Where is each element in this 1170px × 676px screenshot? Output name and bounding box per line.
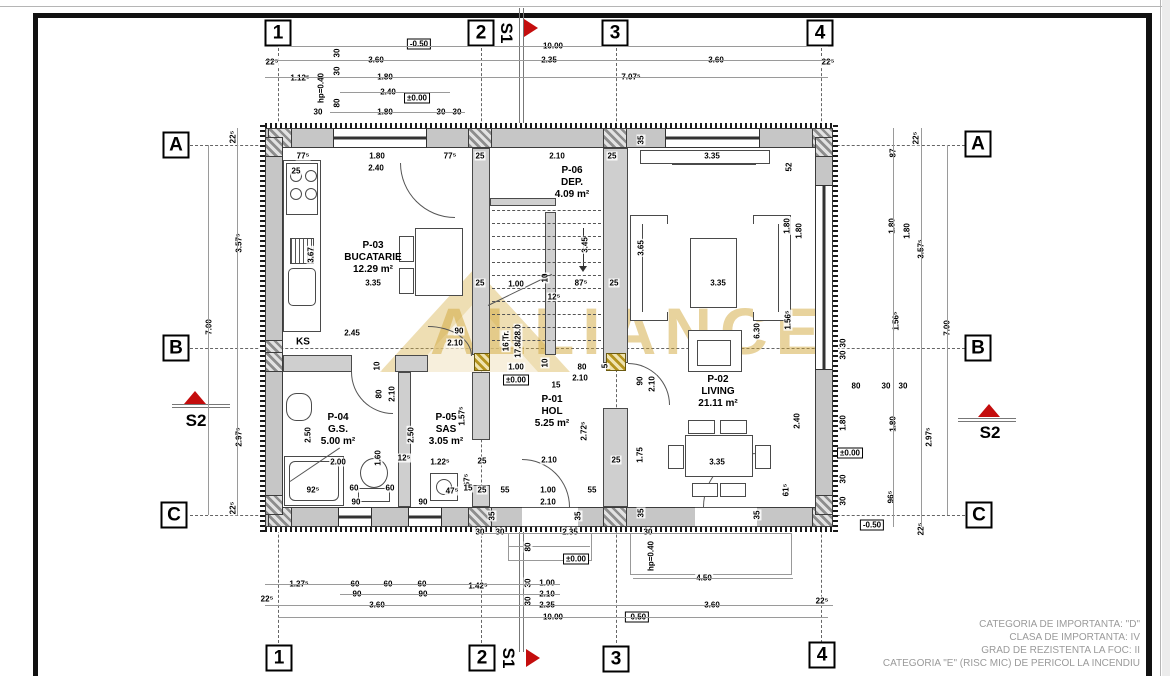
dimension-label: 25 bbox=[291, 167, 302, 176]
sofa-left-seat bbox=[642, 224, 668, 312]
room-area: 4.09 m² bbox=[555, 189, 589, 201]
stair-spine-wall bbox=[545, 212, 556, 355]
dimension-label: 6.30 bbox=[753, 322, 762, 340]
dimension-label: 80 bbox=[333, 98, 342, 109]
dimension-line bbox=[265, 584, 560, 585]
stair-tread bbox=[492, 262, 601, 263]
dimension-label: 7.00 bbox=[205, 318, 214, 336]
dimension-label: 2.40 bbox=[367, 164, 385, 173]
room-id: P-03 bbox=[344, 240, 401, 252]
fire-safety-notes: CATEGORIA DE IMPORTANTA: "D" CLASA DE IM… bbox=[883, 618, 1140, 670]
section-line-s1 bbox=[519, 8, 520, 128]
dimension-label: 30 bbox=[839, 496, 848, 507]
dimension-label: 1.57⁵ bbox=[458, 405, 467, 426]
room-area: 3.05 m² bbox=[429, 436, 463, 448]
dimension-label: -0.50 bbox=[407, 39, 431, 50]
tv-unit-inner bbox=[697, 340, 731, 366]
dimension-label: 2.10 bbox=[446, 339, 464, 348]
dimension-label: -0.50 bbox=[860, 520, 884, 531]
dimension-label: 3.57⁵ bbox=[235, 232, 244, 253]
dimension-label: 35 bbox=[637, 508, 646, 519]
dimension-line bbox=[340, 594, 560, 595]
dimension-line bbox=[921, 128, 922, 527]
section-line-s2 bbox=[958, 421, 1016, 422]
dimension-label: 2.97⁵ bbox=[925, 426, 934, 447]
dimension-label: 60 bbox=[385, 484, 396, 493]
wall-hatch bbox=[265, 352, 283, 372]
sheet-top-thin-line bbox=[0, 6, 1170, 7]
window-kitchen-top bbox=[333, 128, 427, 148]
dimension-label: 30 bbox=[643, 528, 654, 537]
grid-marker-A: A bbox=[163, 132, 190, 159]
section-label-s2-left: S2 bbox=[186, 411, 207, 431]
dimension-label: 90 bbox=[636, 376, 645, 387]
dimension-label: 12⁵ bbox=[397, 454, 412, 463]
dimension-label: 1.80 bbox=[888, 217, 897, 235]
dimension-label: 2.00 bbox=[329, 458, 347, 467]
dimension-line bbox=[278, 617, 828, 618]
kitchen-table bbox=[415, 228, 463, 296]
dimension-label: 1.22⁵ bbox=[429, 458, 450, 467]
section-label-s1-bottom: S1 bbox=[498, 648, 518, 669]
dimension-label: 3.35 bbox=[364, 279, 382, 288]
dimension-label: 2.35 bbox=[561, 528, 579, 537]
dimension-label: 92⁵ bbox=[306, 486, 321, 495]
dining-table bbox=[685, 435, 753, 477]
note-line: CLASA DE IMPORTANTA: IV bbox=[883, 631, 1140, 644]
dimension-label: ±0.00 bbox=[837, 448, 863, 459]
stove-burner bbox=[305, 188, 317, 200]
dimension-label: 35 bbox=[574, 511, 583, 522]
chair bbox=[720, 483, 746, 497]
dimension-label: 80 bbox=[577, 363, 588, 372]
section-line-s2 bbox=[172, 407, 230, 408]
dimension-label: 15 bbox=[551, 381, 562, 390]
stair-tread bbox=[492, 249, 601, 250]
dimension-label: 30 bbox=[333, 66, 342, 77]
section-label-s2-right: S2 bbox=[980, 423, 1001, 443]
washbasin bbox=[286, 393, 312, 421]
dimension-label: 30 bbox=[333, 48, 342, 59]
frame-left bbox=[33, 13, 38, 676]
interior-wall bbox=[472, 148, 490, 355]
dimension-label: 1.80 bbox=[783, 217, 792, 235]
sheet-margin bbox=[1162, 0, 1170, 676]
insulation-bottom bbox=[265, 527, 833, 532]
coffee-table bbox=[690, 238, 737, 308]
wall-hatch bbox=[468, 128, 492, 148]
dimension-label: 25 bbox=[607, 152, 618, 161]
dimension-label: 15 bbox=[463, 484, 474, 493]
dimension-label: 1.00 bbox=[539, 486, 557, 495]
terrace-door-opening bbox=[695, 507, 757, 527]
dimension-label: 55 bbox=[500, 486, 511, 495]
dimension-label: 52 bbox=[785, 162, 794, 173]
dimension-label: 2.50 bbox=[407, 426, 416, 444]
grid-marker-2: 2 bbox=[468, 20, 495, 47]
dimension-label: 3.35 bbox=[708, 458, 726, 467]
wall-hatch bbox=[265, 495, 283, 515]
dimension-label: 1.00 bbox=[507, 363, 525, 372]
dimension-line bbox=[237, 128, 238, 515]
door-arc bbox=[400, 163, 455, 218]
dimension-label: 25 bbox=[611, 456, 622, 465]
dimension-label: 1.80 bbox=[839, 414, 848, 432]
dimension-label: 35 bbox=[637, 135, 646, 146]
dimension-label: 77⁵ bbox=[443, 152, 458, 161]
dimension-label: 47⁵ bbox=[445, 487, 460, 496]
window-living-top bbox=[665, 128, 760, 148]
dimension-label: 35 bbox=[753, 510, 762, 521]
section-arrow-icon bbox=[526, 649, 540, 667]
room-name: DEP. bbox=[555, 177, 589, 189]
dimension-line bbox=[340, 92, 450, 93]
dimension-label: 90 bbox=[418, 498, 429, 507]
stair-arrow-head-icon bbox=[579, 266, 587, 272]
dimension-line bbox=[640, 605, 790, 606]
stair-tread bbox=[492, 275, 601, 276]
exterior-wall-left bbox=[265, 128, 283, 527]
chair bbox=[688, 420, 715, 434]
dimension-line bbox=[947, 145, 948, 515]
grid-marker-4: 4 bbox=[807, 20, 834, 47]
dimension-label: 35 bbox=[488, 511, 497, 522]
chair bbox=[755, 445, 771, 469]
dimension-label: 30 bbox=[839, 338, 848, 349]
kitchen-sink bbox=[288, 268, 316, 306]
section-arrow-icon bbox=[524, 19, 538, 37]
floor-plan-sheet: ALLIANCE bbox=[0, 0, 1170, 676]
window-living-right bbox=[815, 185, 833, 370]
frame-top bbox=[36, 13, 1152, 18]
stair-tread bbox=[492, 340, 601, 341]
room-label-P-04: P-04G.S.5.00 m² bbox=[321, 412, 355, 448]
dimension-label: 80 bbox=[524, 542, 533, 553]
room-area: 21.11 m² bbox=[698, 398, 737, 410]
dimension-label: 55 bbox=[587, 486, 598, 495]
dimension-label: 30 bbox=[898, 382, 909, 391]
shower-tray-inner bbox=[289, 461, 339, 501]
interior-wall bbox=[395, 355, 428, 372]
grid-marker-B: B bbox=[965, 335, 992, 362]
wall-hatch-gold bbox=[474, 353, 490, 371]
dimension-line bbox=[330, 112, 465, 113]
dimension-line bbox=[278, 46, 828, 47]
section-line-s2 bbox=[958, 418, 1016, 419]
dimension-line bbox=[265, 60, 833, 61]
dimension-label: 2.10 bbox=[548, 152, 566, 161]
dimension-label: 1.80 bbox=[903, 222, 912, 240]
dimension-label: 90 bbox=[454, 327, 465, 336]
stove-burner bbox=[305, 170, 317, 182]
room-id: P-01 bbox=[535, 394, 569, 406]
stair-tread bbox=[492, 314, 601, 315]
dimension-label: 5 bbox=[601, 363, 610, 369]
dimension-label: 87⁵ bbox=[574, 279, 589, 288]
dimension-label: hp=0.40 bbox=[647, 540, 656, 572]
dimension-line bbox=[893, 128, 894, 527]
stair-tread bbox=[492, 327, 601, 328]
dimension-label: 1.60 bbox=[374, 449, 383, 467]
dimension-label: 2.10 bbox=[648, 375, 657, 393]
dimension-label: 2.40 bbox=[793, 412, 802, 430]
entry-door-opening bbox=[522, 507, 578, 527]
grid-marker-4: 4 bbox=[809, 642, 836, 669]
interior-wall bbox=[283, 355, 352, 372]
dimension-label: ±0.00 bbox=[563, 554, 589, 565]
dimension-label: 3.67 bbox=[307, 246, 316, 264]
dimension-label: 25 bbox=[477, 486, 488, 495]
dimension-label: 25 bbox=[475, 152, 486, 161]
room-id: P-04 bbox=[321, 412, 355, 424]
wall-hatch bbox=[815, 495, 833, 515]
dimension-label: 2.10 bbox=[388, 385, 397, 403]
dimension-label: 2.97⁵ bbox=[235, 426, 244, 447]
wall-hatch bbox=[603, 128, 627, 148]
dimension-label: 30 bbox=[475, 528, 486, 537]
frame-right bbox=[1146, 13, 1152, 676]
dimension-label: 1.80 bbox=[368, 152, 386, 161]
grid-marker-A: A bbox=[965, 131, 992, 158]
dimension-label: 17.8/28.0 bbox=[514, 323, 523, 358]
room-id: P-06 bbox=[555, 165, 589, 177]
grid-marker-2: 2 bbox=[469, 645, 496, 672]
section-arrow-icon bbox=[184, 391, 206, 404]
dimension-label: 2.50 bbox=[304, 426, 313, 444]
dimension-label: 61⁵ bbox=[782, 483, 791, 498]
dimension-label: 16 Tr. bbox=[502, 330, 511, 352]
dimension-line bbox=[477, 533, 660, 534]
chair bbox=[720, 420, 747, 434]
ks-label: KS bbox=[295, 338, 311, 347]
grid-marker-C: C bbox=[966, 502, 993, 529]
dimension-label: 1.12⁵ bbox=[289, 74, 310, 83]
section-line-s2 bbox=[172, 404, 230, 405]
dimension-label: ±0.00 bbox=[404, 93, 430, 104]
chair bbox=[692, 483, 718, 497]
window-bottom-1 bbox=[338, 507, 372, 527]
dimension-label: ±0.00 bbox=[503, 375, 529, 386]
insulation-right bbox=[833, 123, 838, 532]
dimension-label: 1.80 bbox=[795, 222, 804, 240]
dimension-label: 3.65 bbox=[637, 239, 646, 257]
dimension-label: 22⁵ bbox=[265, 58, 280, 67]
wall-hatch bbox=[265, 137, 283, 157]
section-label-s1-top: S1 bbox=[496, 23, 516, 44]
stair-tread bbox=[492, 288, 601, 289]
stair-tread bbox=[492, 301, 601, 302]
note-line: CATEGORIA "E" (RISC MIC) DE PERICOL LA I… bbox=[883, 657, 1140, 670]
room-area: 5.25 m² bbox=[535, 418, 569, 430]
dimension-label: 77⁵ bbox=[296, 152, 311, 161]
dimension-label: 22⁵ bbox=[821, 58, 836, 67]
dimension-label: 25 bbox=[475, 279, 486, 288]
grid-marker-3: 3 bbox=[602, 20, 629, 47]
note-line: CATEGORIA DE IMPORTANTA: "D" bbox=[883, 618, 1140, 631]
dimension-label: 2.10 bbox=[571, 374, 589, 383]
dimension-label: 2.10 bbox=[540, 456, 558, 465]
dimension-label: 3.35 bbox=[703, 152, 721, 161]
room-label-P-01: P-01HOL5.25 m² bbox=[535, 394, 569, 430]
room-name: HOL bbox=[535, 406, 569, 418]
dimension-label: 30 bbox=[313, 108, 324, 117]
grid-marker-1: 1 bbox=[265, 20, 292, 47]
dimension-line bbox=[208, 145, 209, 515]
dimension-label: 2.10 bbox=[539, 498, 557, 507]
stove-burner bbox=[290, 188, 302, 200]
grid-marker-C: C bbox=[161, 502, 188, 529]
dimension-label: 90 bbox=[351, 498, 362, 507]
room-label-P-06: P-06DEP.4.09 m² bbox=[555, 165, 589, 201]
dimension-label: 2.45 bbox=[343, 329, 361, 338]
dimension-label: 30 bbox=[839, 350, 848, 361]
dimension-label: 3.45 bbox=[581, 236, 590, 254]
dimension-label: 30 bbox=[524, 578, 533, 589]
dimension-label: 30 bbox=[495, 528, 506, 537]
room-label-P-02: P-02LIVING21.11 m² bbox=[698, 374, 737, 410]
room-area: 5.00 m² bbox=[321, 436, 355, 448]
dimension-label: 80 bbox=[851, 382, 862, 391]
stair-tread bbox=[492, 210, 601, 211]
dimension-label: 22⁵ bbox=[260, 595, 275, 604]
interior-wall bbox=[472, 372, 490, 440]
dimension-label: 30 bbox=[881, 382, 892, 391]
room-name: G.S. bbox=[321, 424, 355, 436]
dimension-label: 30 bbox=[839, 474, 848, 485]
note-line: GRAD DE REZISTENTA LA FOC: II bbox=[883, 644, 1140, 657]
dimension-label: 3.35 bbox=[709, 279, 727, 288]
grid-marker-3: 3 bbox=[603, 646, 630, 673]
stair-tread bbox=[492, 236, 601, 237]
wall-hatch bbox=[603, 507, 627, 527]
grid-marker-1: 1 bbox=[266, 645, 293, 672]
dimension-label: 80 bbox=[375, 389, 384, 400]
room-id: P-02 bbox=[698, 374, 737, 386]
dimension-label: 1.00 bbox=[538, 579, 556, 588]
dimension-label: 10 bbox=[541, 358, 550, 369]
dimension-line bbox=[633, 578, 793, 579]
dimension-label: 2.72⁵ bbox=[580, 420, 589, 441]
sheet-edge-line bbox=[1160, 0, 1161, 676]
dimension-line bbox=[265, 77, 828, 78]
chair bbox=[668, 445, 684, 469]
dimension-label: 60 bbox=[349, 484, 360, 493]
room-name: LIVING bbox=[698, 386, 737, 398]
dimension-label: 22⁵ bbox=[912, 131, 921, 146]
stair-tread bbox=[492, 223, 601, 224]
section-arrow-icon bbox=[978, 404, 1000, 417]
sofa-right-seat bbox=[753, 224, 779, 312]
dimension-label: 1.42⁵ bbox=[467, 582, 488, 591]
room-name: BUCATARIE bbox=[344, 252, 401, 264]
dimension-label: 1.56⁵ bbox=[784, 309, 793, 330]
dimension-label: 10 bbox=[373, 361, 382, 372]
dimension-label: 25 bbox=[477, 457, 488, 466]
interior-wall bbox=[490, 198, 556, 206]
dimension-label: 1.75 bbox=[636, 446, 645, 464]
dimension-label: 96⁵ bbox=[887, 490, 896, 505]
wall-hatch bbox=[815, 137, 833, 157]
grid-marker-B: B bbox=[163, 335, 190, 362]
room-label-P-03: P-03BUCATARIE12.29 m² bbox=[344, 240, 401, 276]
dimension-label: 25 bbox=[609, 279, 620, 288]
window-bottom-2 bbox=[408, 507, 442, 527]
interior-wall bbox=[603, 148, 628, 363]
entry-step-line bbox=[508, 546, 590, 547]
room-area: 12.29 m² bbox=[344, 264, 401, 276]
